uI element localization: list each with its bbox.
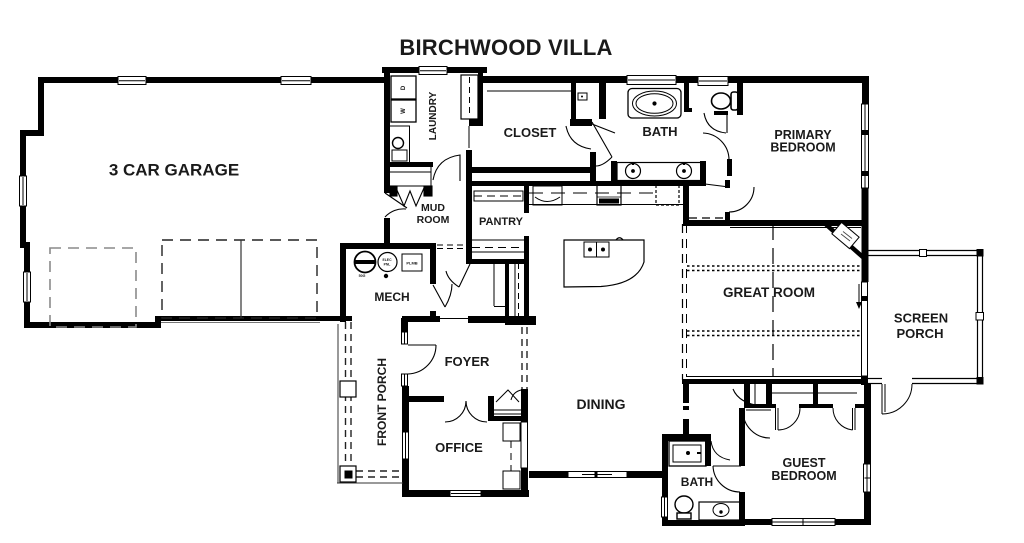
svg-text:GUEST: GUEST [782, 456, 825, 470]
svg-text:FRONT PORCH: FRONT PORCH [375, 358, 389, 446]
svg-text:MUD: MUD [421, 202, 445, 214]
svg-text:GREAT ROOM: GREAT ROOM [723, 285, 815, 300]
svg-text:ROOM: ROOM [417, 214, 450, 226]
svg-text:D: D [401, 85, 407, 90]
svg-text:3 CAR GARAGE: 3 CAR GARAGE [109, 161, 239, 180]
svg-text:ELEC: ELEC [382, 258, 392, 262]
svg-text:PANTRY: PANTRY [479, 216, 524, 228]
svg-text:W: W [401, 108, 407, 114]
svg-text:BEDROOM: BEDROOM [770, 141, 835, 155]
svg-text:BATH: BATH [642, 124, 677, 139]
svg-text:MECH: MECH [374, 290, 409, 304]
svg-text:LAUNDRY: LAUNDRY [428, 91, 439, 140]
svg-text:PNL: PNL [384, 263, 391, 267]
svg-text:FOYER: FOYER [445, 354, 490, 369]
svg-text:BIRCHWOOD VILLA: BIRCHWOOD VILLA [399, 35, 612, 60]
svg-text:BATH: BATH [681, 475, 713, 489]
svg-text:CLOSET: CLOSET [504, 125, 557, 140]
svg-text:PORCH: PORCH [897, 326, 944, 341]
svg-text:50G: 50G [359, 274, 366, 278]
svg-text:BEDROOM: BEDROOM [771, 469, 836, 483]
svg-text:OFFICE: OFFICE [435, 440, 483, 455]
svg-text:DINING: DINING [577, 396, 626, 412]
svg-text:PLMB: PLMB [406, 261, 417, 266]
svg-text:SCREEN: SCREEN [894, 311, 948, 326]
